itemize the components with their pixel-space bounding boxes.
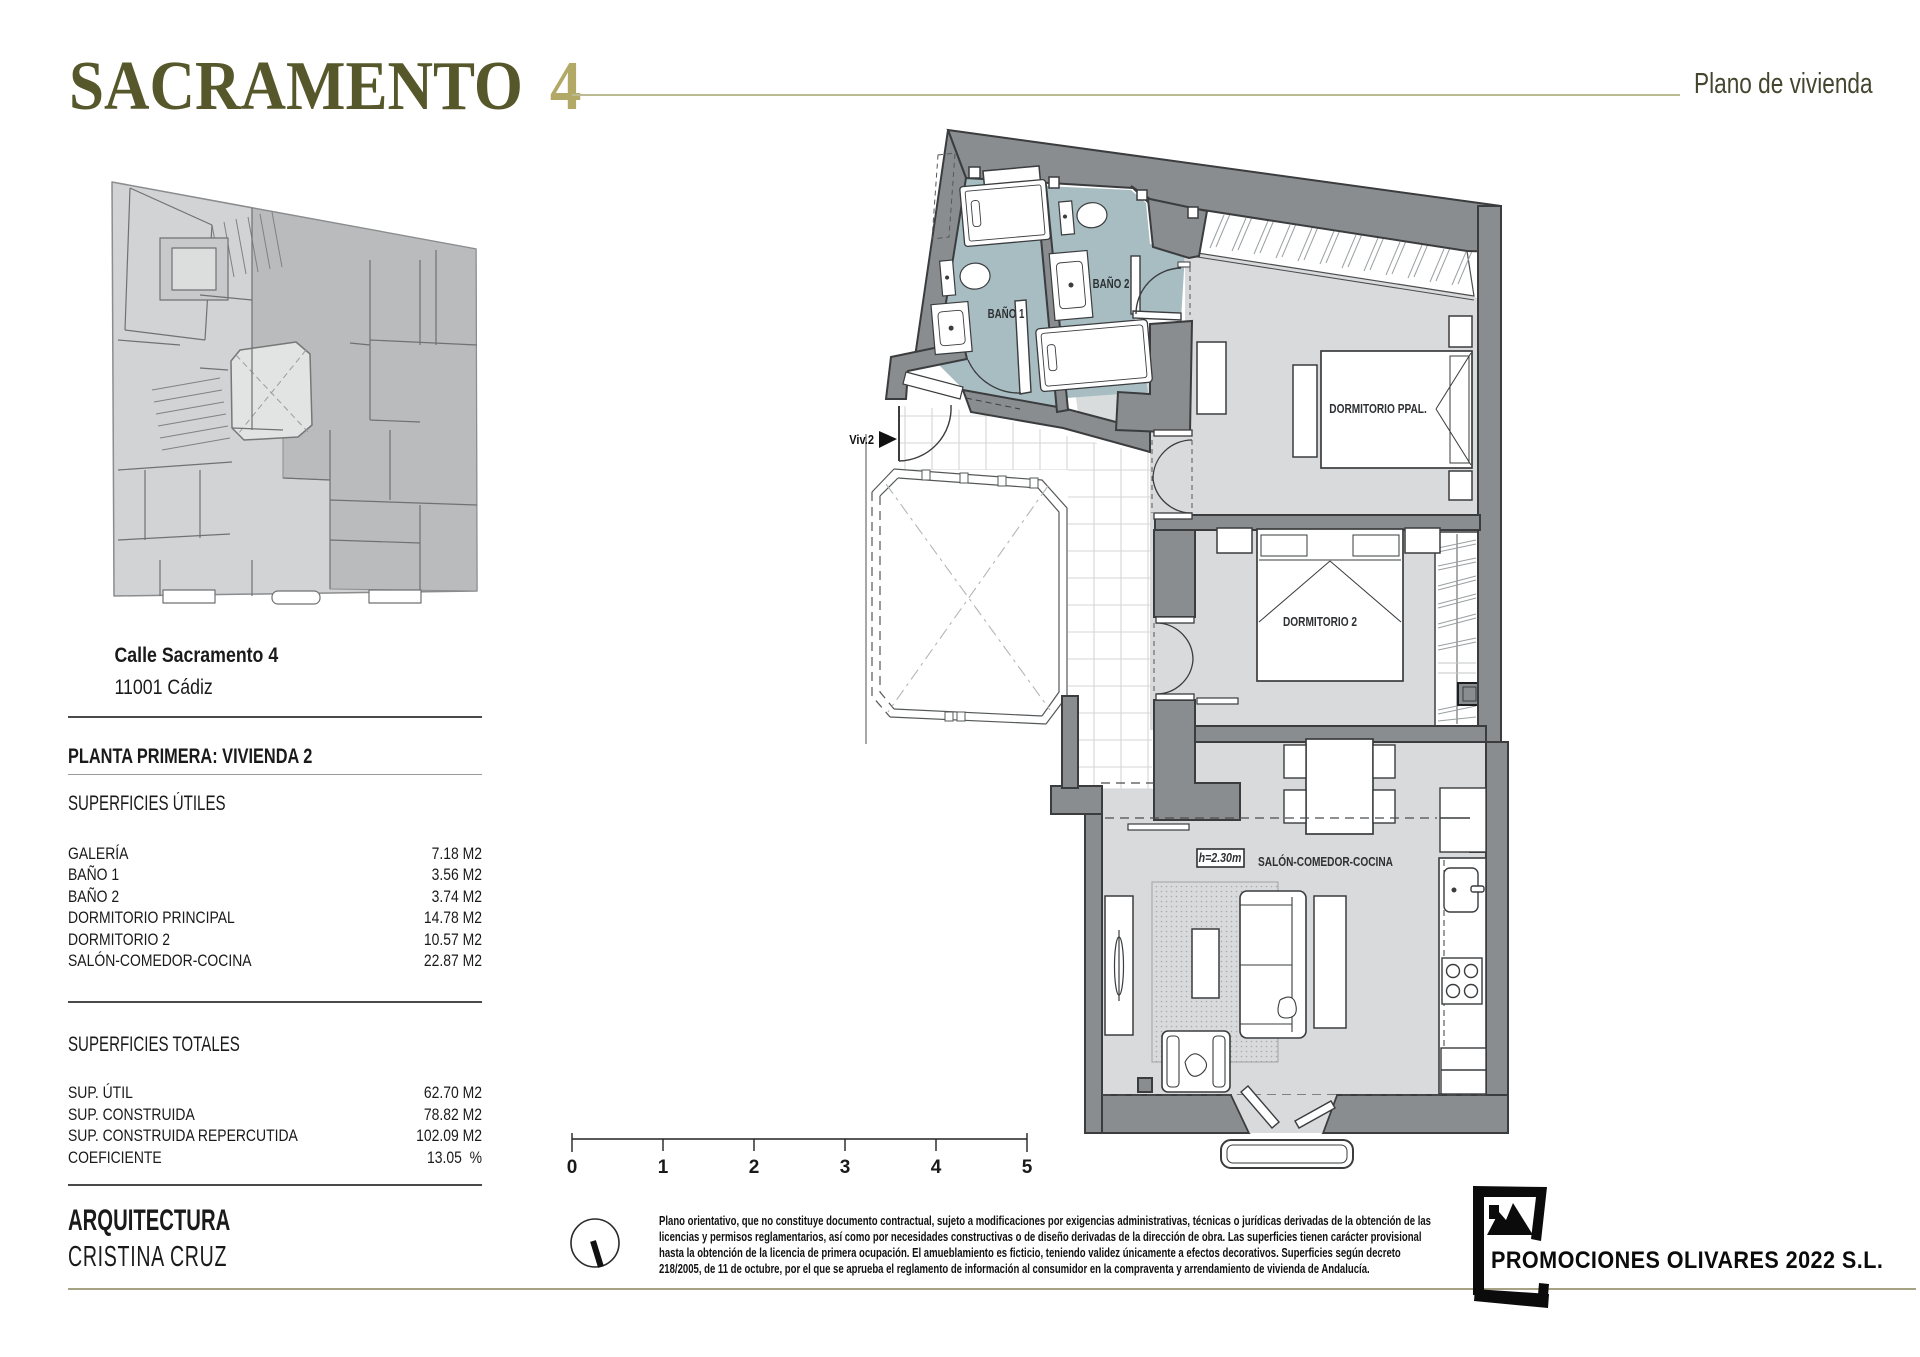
svg-text:PROMOCIONES OLIVARES 2022 S.L.: PROMOCIONES OLIVARES 2022 S.L. <box>1491 1246 1883 1273</box>
svg-text:0: 0 <box>567 1157 578 1178</box>
svg-text:BAÑO 2: BAÑO 2 <box>1093 277 1130 291</box>
svg-text:1: 1 <box>658 1157 669 1178</box>
svg-text:SALÓN-COMEDOR-COCINA: SALÓN-COMEDOR-COCINA <box>1258 855 1394 869</box>
svg-text:2: 2 <box>749 1157 760 1178</box>
svg-text:4: 4 <box>931 1157 942 1178</box>
svg-text:DORMITORIO 2: DORMITORIO 2 <box>1283 615 1358 629</box>
svg-text:3: 3 <box>840 1157 851 1178</box>
svg-text:h=2.30m: h=2.30m <box>1199 851 1242 865</box>
svg-text:BAÑO 1: BAÑO 1 <box>988 307 1025 321</box>
svg-text:5: 5 <box>1022 1157 1033 1178</box>
svg-text:DORMITORIO PPAL.: DORMITORIO PPAL. <box>1329 402 1427 416</box>
svg-text:Viv.2: Viv.2 <box>849 432 874 447</box>
